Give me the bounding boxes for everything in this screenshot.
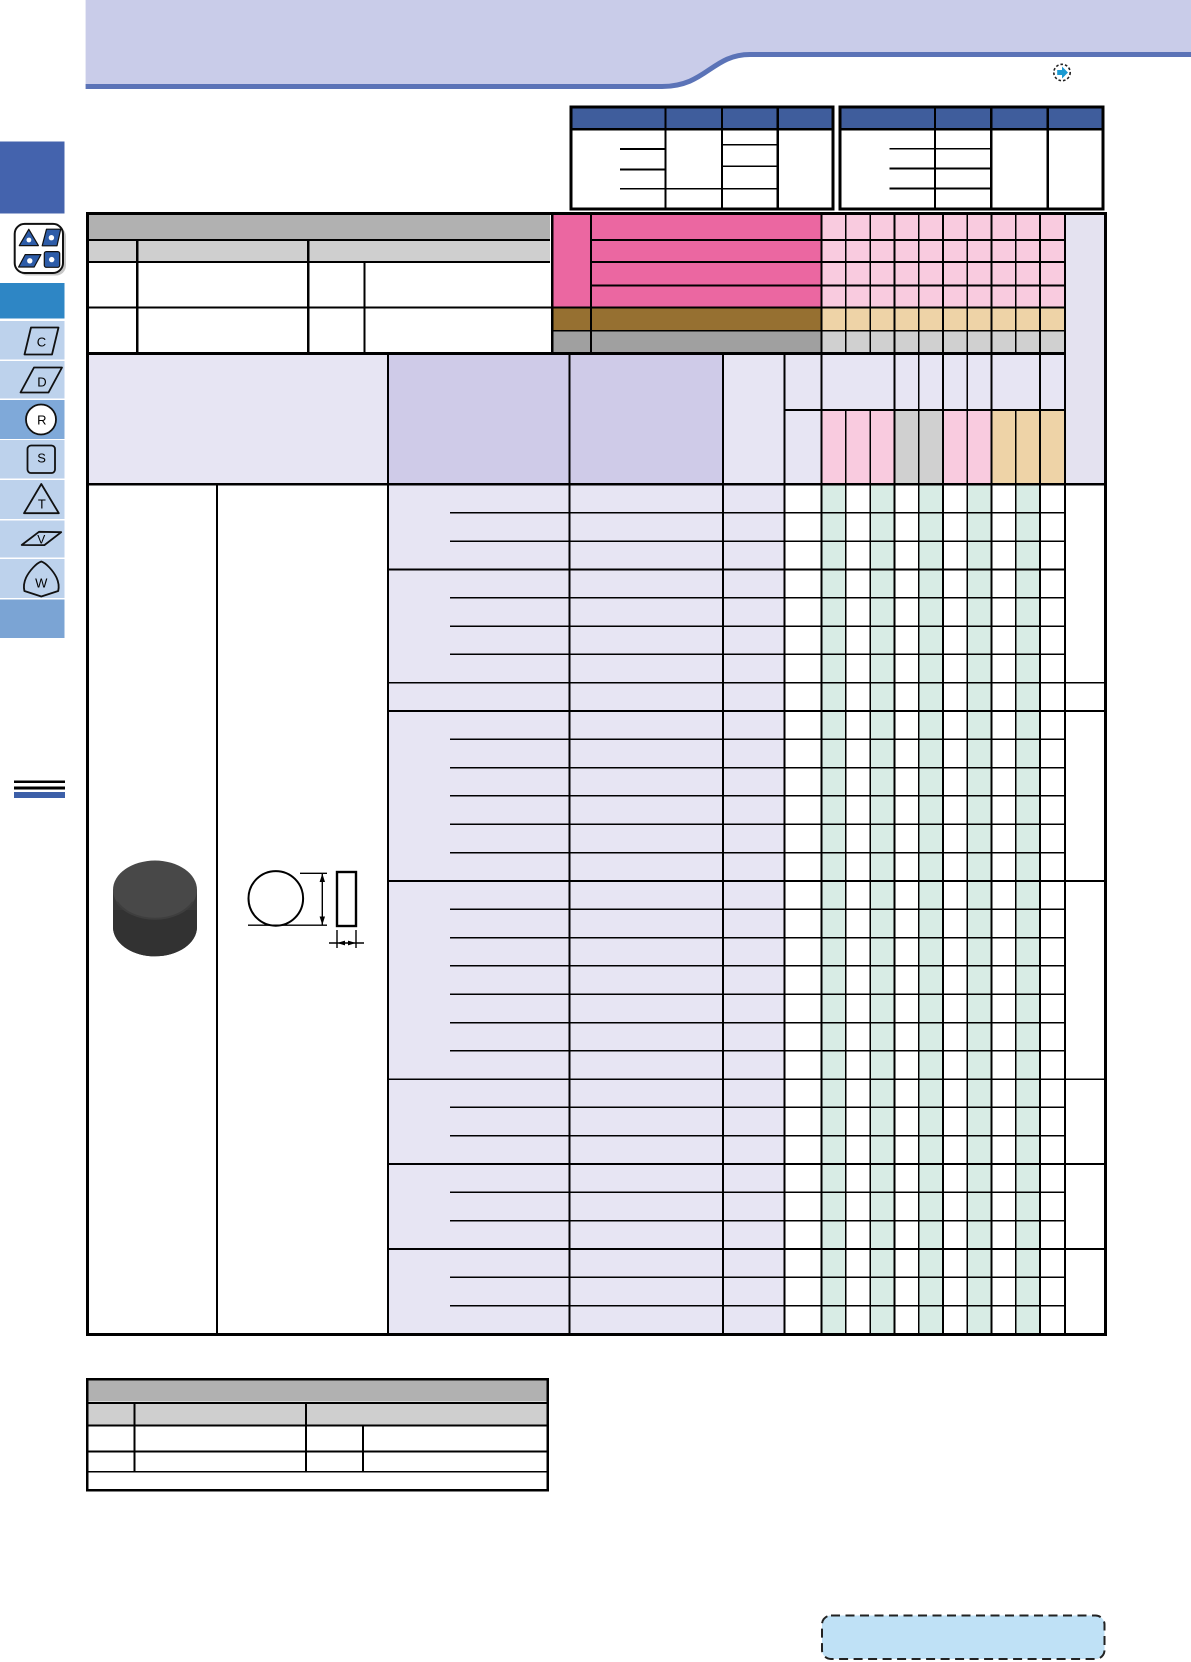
svg-text:S: S: [37, 451, 46, 466]
svg-text:T: T: [38, 497, 46, 512]
svg-text:W: W: [35, 576, 48, 591]
svg-text:V: V: [37, 533, 45, 547]
svg-text:D: D: [37, 375, 46, 390]
svg-text:C: C: [37, 334, 46, 349]
svg-text:R: R: [37, 413, 46, 428]
